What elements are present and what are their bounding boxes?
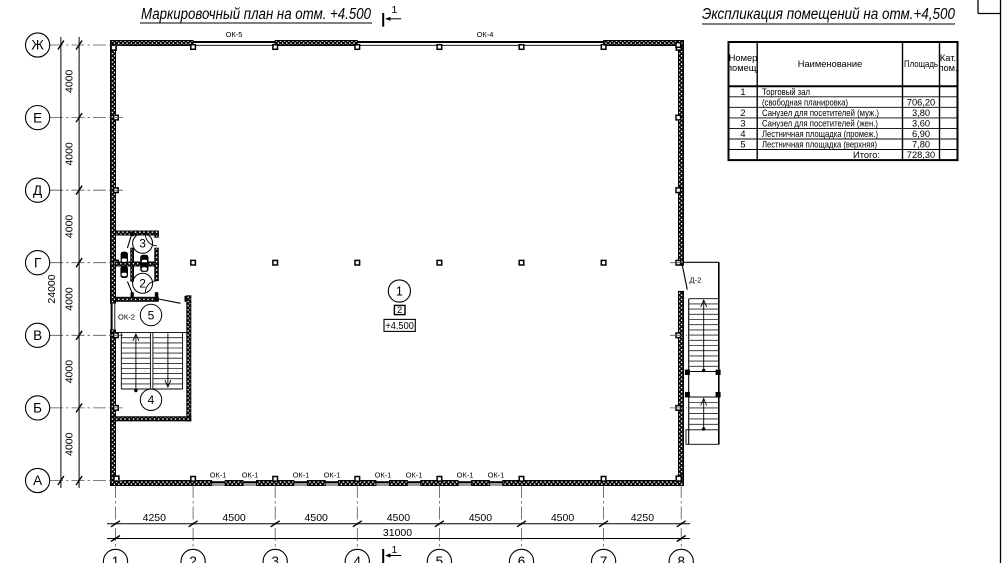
- svg-text:ОК-1: ОК-1: [324, 471, 341, 480]
- svg-text:Санузел для посетителей (муж.): Санузел для посетителей (муж.): [762, 108, 879, 118]
- svg-text:4000: 4000: [64, 142, 76, 166]
- svg-text:4500: 4500: [305, 512, 329, 524]
- svg-text:Торговый зал: Торговый зал: [762, 87, 810, 97]
- svg-text:2: 2: [139, 277, 146, 291]
- svg-text:Кат.: Кат.: [940, 53, 956, 63]
- svg-text:Е: Е: [33, 110, 42, 125]
- svg-text:Лестничная площадка (верхняя): Лестничная площадка (верхняя): [762, 140, 877, 150]
- svg-text:3,80: 3,80: [912, 108, 930, 118]
- svg-text:Д: Д: [33, 183, 42, 198]
- svg-text:В: В: [33, 328, 42, 343]
- svg-text:1: 1: [740, 87, 745, 97]
- svg-text:5: 5: [740, 140, 745, 150]
- svg-text:1: 1: [392, 4, 398, 16]
- svg-text:8: 8: [677, 554, 685, 563]
- svg-text:4000: 4000: [64, 432, 76, 456]
- svg-text:ОК-1: ОК-1: [406, 471, 423, 480]
- svg-text:6,90: 6,90: [912, 129, 930, 139]
- svg-text:Итого:: Итого:: [853, 150, 880, 160]
- svg-text:4500: 4500: [551, 512, 575, 524]
- svg-text:А: А: [33, 473, 42, 488]
- svg-text:Маркировочный план на отм. +4.: Маркировочный план на отм. +4.500: [141, 6, 371, 23]
- svg-text:4: 4: [148, 393, 155, 407]
- svg-text:4000: 4000: [64, 215, 76, 239]
- svg-text:4500: 4500: [387, 512, 411, 524]
- svg-text:3: 3: [740, 118, 745, 128]
- svg-text:Площадь: Площадь: [904, 59, 938, 69]
- svg-text:ОК-1: ОК-1: [293, 471, 310, 480]
- svg-text:Г: Г: [34, 255, 42, 270]
- svg-text:ОК-1: ОК-1: [488, 471, 505, 480]
- svg-text:728,30: 728,30: [907, 150, 935, 160]
- svg-text:7: 7: [600, 554, 608, 563]
- svg-text:ОК-1: ОК-1: [210, 471, 227, 480]
- svg-text:1: 1: [396, 285, 403, 299]
- svg-text:1: 1: [392, 544, 398, 556]
- svg-text:706,20: 706,20: [907, 97, 935, 107]
- svg-text:Д-2: Д-2: [690, 276, 702, 285]
- svg-text:Лестничная площадка (промеж.): Лестничная площадка (промеж.): [762, 129, 878, 139]
- svg-text:ОК-1: ОК-1: [242, 471, 259, 480]
- svg-text:2: 2: [740, 108, 745, 118]
- svg-text:2: 2: [397, 305, 402, 316]
- svg-text:Ж: Ж: [31, 38, 44, 53]
- svg-text:31000: 31000: [383, 527, 412, 539]
- svg-text:ОК-1: ОК-1: [375, 471, 392, 480]
- svg-text:4: 4: [354, 554, 362, 563]
- svg-text:4: 4: [740, 129, 745, 139]
- svg-text:ОК-4: ОК-4: [477, 30, 494, 39]
- svg-text:ОК-5: ОК-5: [226, 30, 243, 39]
- svg-text:3: 3: [271, 554, 279, 563]
- svg-text:Наименование: Наименование: [798, 59, 862, 69]
- svg-text:помещ.: помещ.: [727, 63, 759, 73]
- svg-text:5: 5: [148, 308, 155, 322]
- svg-text:1: 1: [112, 554, 120, 563]
- svg-text:Экспликация помещений на отм.+: Экспликация помещений на отм.+4,500: [702, 6, 955, 23]
- svg-text:Б: Б: [33, 401, 42, 416]
- svg-text:4250: 4250: [143, 512, 167, 524]
- svg-text:Номер: Номер: [729, 53, 758, 63]
- svg-text:ОК-2: ОК-2: [118, 313, 135, 322]
- svg-text:5: 5: [436, 554, 444, 563]
- svg-text:24000: 24000: [46, 274, 58, 303]
- svg-text:ОК-1: ОК-1: [457, 471, 474, 480]
- svg-text:+4.500: +4.500: [385, 321, 414, 332]
- svg-text:4000: 4000: [64, 287, 76, 311]
- svg-text:2: 2: [189, 554, 197, 563]
- svg-text:пом.: пом.: [938, 63, 957, 73]
- svg-text:3,60: 3,60: [912, 118, 930, 128]
- svg-text:4000: 4000: [64, 360, 76, 384]
- svg-text:Санузел для посетителей (жен.): Санузел для посетителей (жен.): [762, 118, 878, 128]
- svg-text:4500: 4500: [222, 512, 246, 524]
- svg-text:(свободная планировка): (свободная планировка): [762, 97, 848, 107]
- svg-text:6: 6: [518, 554, 526, 563]
- svg-text:4250: 4250: [631, 512, 655, 524]
- svg-text:4000: 4000: [64, 69, 76, 93]
- svg-text:3: 3: [139, 237, 146, 251]
- svg-text:4500: 4500: [469, 512, 493, 524]
- svg-text:7,80: 7,80: [912, 140, 930, 150]
